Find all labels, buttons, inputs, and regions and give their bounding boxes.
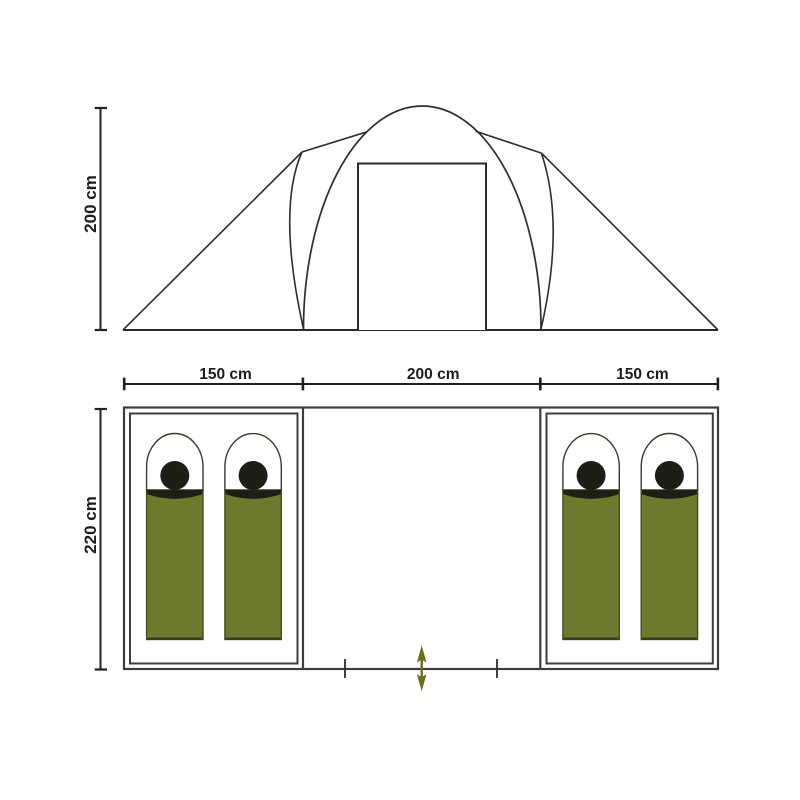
svg-text:150 cm: 150 cm	[199, 366, 252, 383]
svg-text:150 cm: 150 cm	[616, 366, 669, 383]
svg-text:200 cm: 200 cm	[407, 366, 460, 383]
svg-text:200 cm: 200 cm	[81, 175, 100, 233]
svg-text:220 cm: 220 cm	[81, 496, 100, 554]
